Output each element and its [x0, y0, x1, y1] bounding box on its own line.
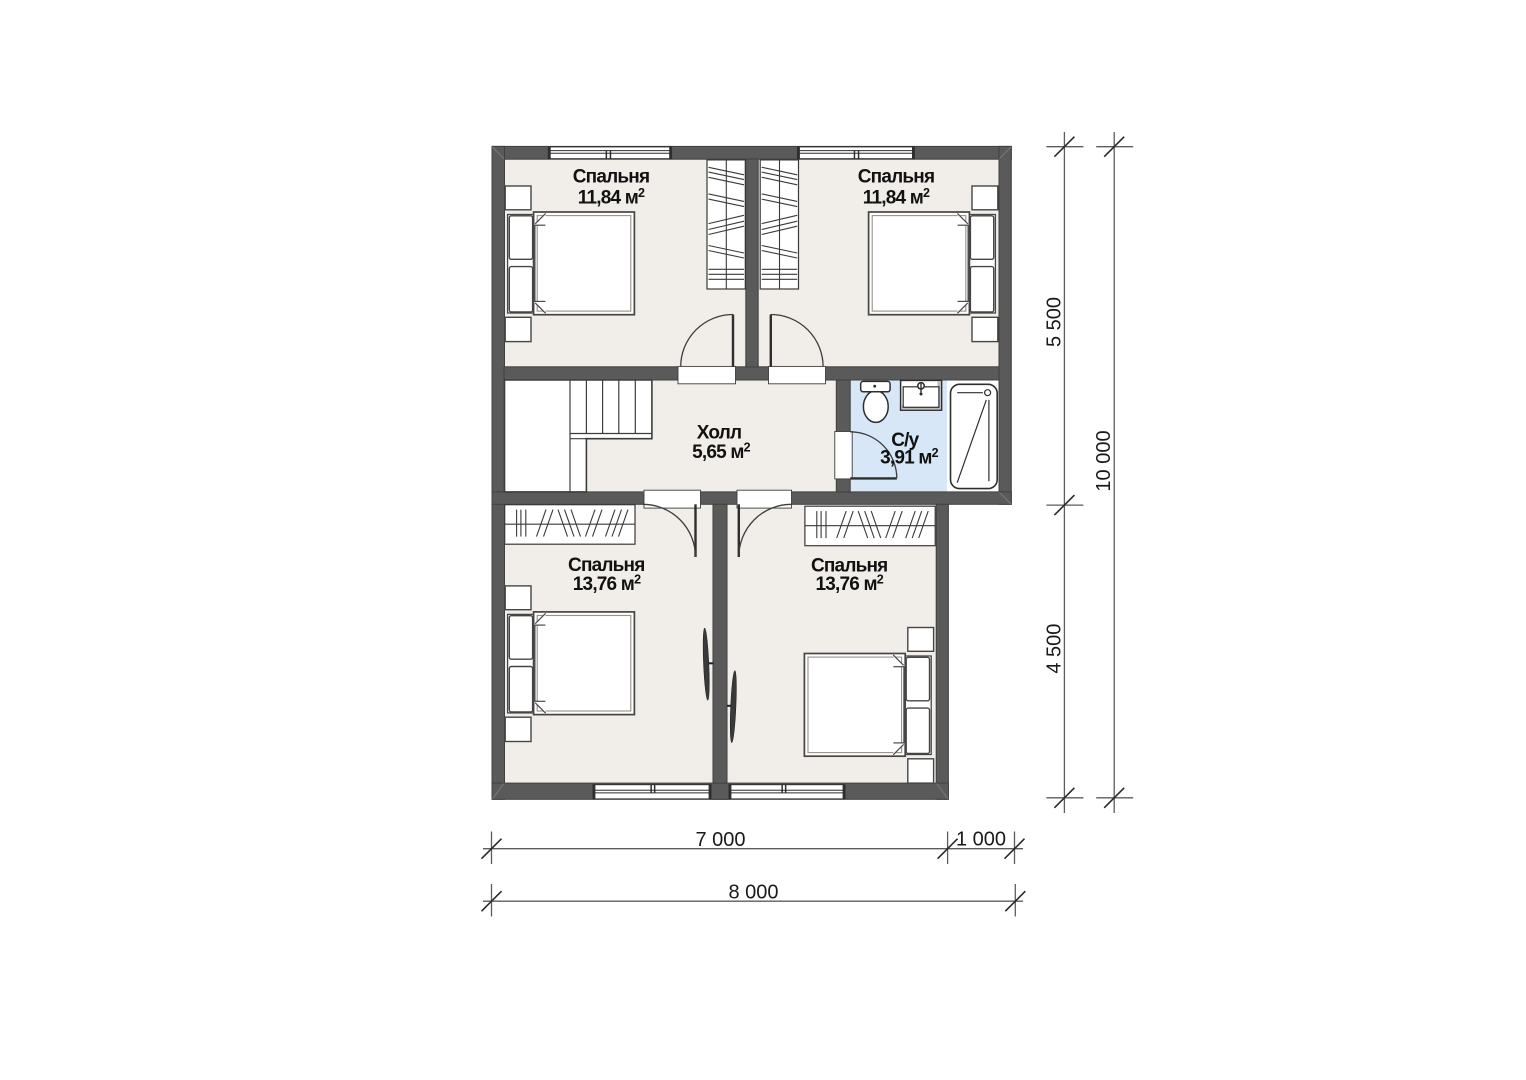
svg-text:7 000: 7 000 [695, 829, 745, 851]
svg-text:5,65 м2: 5,65 м2 [692, 440, 751, 463]
svg-text:13,76 м2: 13,76 м2 [573, 573, 641, 596]
svg-text:8 000: 8 000 [728, 882, 778, 904]
svg-text:Спальня: Спальня [858, 167, 934, 188]
svg-text:11,84 м2: 11,84 м2 [578, 186, 645, 209]
svg-text:Холл: Холл [697, 423, 742, 444]
svg-text:3,91 м2: 3,91 м2 [880, 446, 939, 469]
svg-text:11,84 м2: 11,84 м2 [863, 186, 930, 209]
svg-text:5 500: 5 500 [1044, 297, 1066, 347]
svg-text:10 000: 10 000 [1093, 430, 1115, 491]
svg-text:Спальня: Спальня [568, 555, 644, 576]
svg-text:1 000: 1 000 [956, 828, 1006, 850]
svg-text:13,76 м2: 13,76 м2 [815, 573, 883, 596]
svg-text:4 500: 4 500 [1044, 624, 1066, 674]
svg-text:Спальня: Спальня [573, 167, 649, 188]
